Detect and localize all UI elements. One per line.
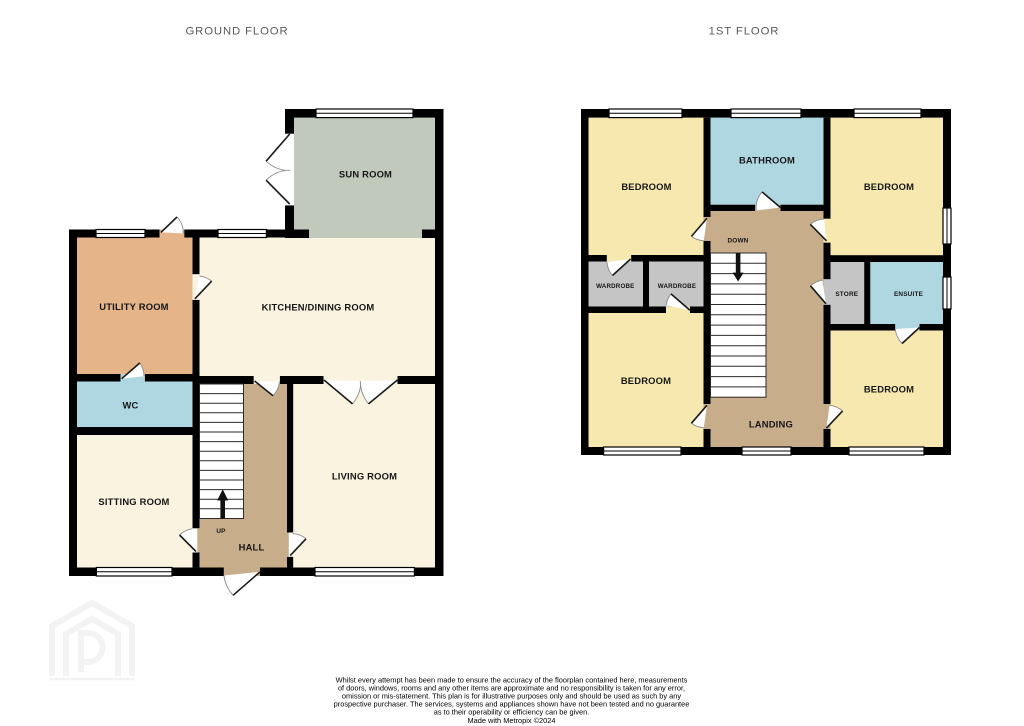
svg-text:BATHROOM: BATHROOM: [739, 155, 795, 166]
svg-text:STORE: STORE: [835, 291, 858, 298]
svg-text:WC: WC: [122, 400, 138, 411]
svg-text:UTILITY ROOM: UTILITY ROOM: [99, 301, 168, 312]
svg-text:SUN ROOM: SUN ROOM: [339, 169, 392, 180]
svg-text:DOWN: DOWN: [727, 238, 748, 245]
svg-text:BEDROOM: BEDROOM: [864, 384, 914, 395]
svg-text:BEDROOM: BEDROOM: [621, 181, 671, 192]
svg-text:Made with Metropix ©2024: Made with Metropix ©2024: [467, 716, 555, 725]
svg-text:WARDROBE: WARDROBE: [658, 283, 696, 290]
svg-text:SITTING ROOM: SITTING ROOM: [98, 496, 169, 507]
svg-text:ENSUITE: ENSUITE: [894, 291, 924, 298]
svg-text:LANDING: LANDING: [749, 419, 793, 430]
svg-text:BEDROOM: BEDROOM: [621, 375, 671, 386]
svg-text:KITCHEN/DINING ROOM: KITCHEN/DINING ROOM: [262, 302, 375, 313]
svg-text:GROUND FLOOR: GROUND FLOOR: [185, 26, 288, 38]
svg-text:HALL: HALL: [239, 542, 265, 553]
svg-text:UP: UP: [216, 528, 226, 535]
svg-text:1ST FLOOR: 1ST FLOOR: [709, 26, 780, 38]
svg-text:BEDROOM: BEDROOM: [864, 181, 914, 192]
svg-text:LIVING ROOM: LIVING ROOM: [332, 471, 397, 482]
svg-text:WARDROBE: WARDROBE: [596, 283, 634, 290]
